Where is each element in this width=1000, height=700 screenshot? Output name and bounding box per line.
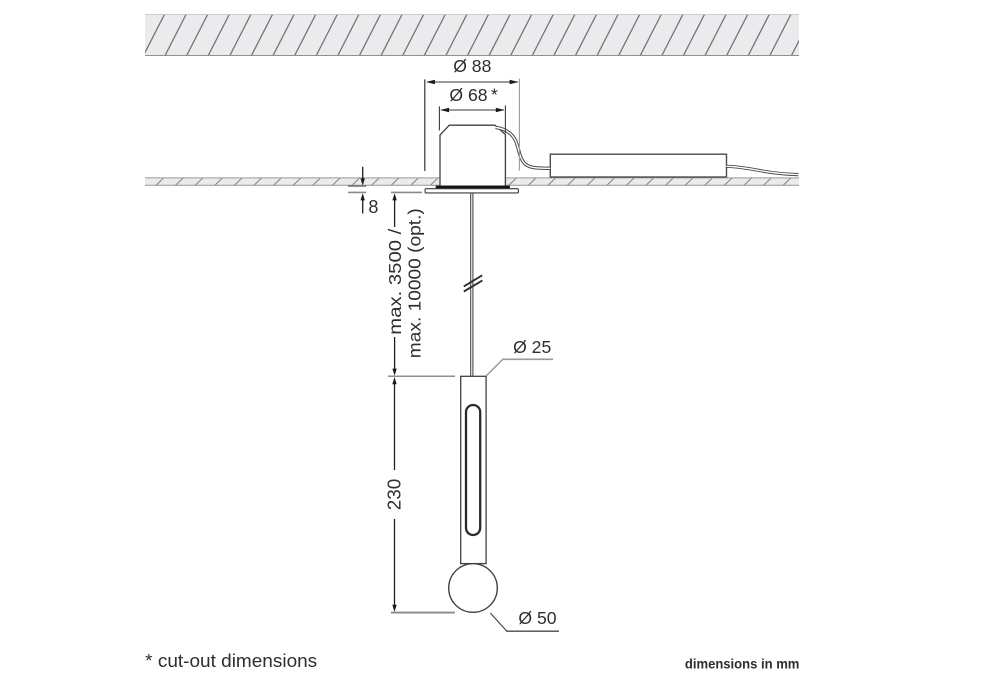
svg-text:8: 8 [368,197,378,217]
svg-text:Ø 88: Ø 88 [453,56,491,76]
svg-text:Ø 25: Ø 25 [513,337,551,357]
svg-text:*: * [491,85,498,105]
svg-text:max. 10000 (opt.): max. 10000 (opt.) [404,208,424,358]
svg-text:dimensions in mm: dimensions in mm [685,657,800,673]
svg-text:Ø 68: Ø 68 [449,85,487,105]
svg-text:Ø 50: Ø 50 [518,608,556,628]
svg-text:max. 3500 /: max. 3500 / [385,229,405,335]
svg-text:230: 230 [384,479,404,511]
svg-text:* cut-out dimensions: * cut-out dimensions [145,650,317,671]
